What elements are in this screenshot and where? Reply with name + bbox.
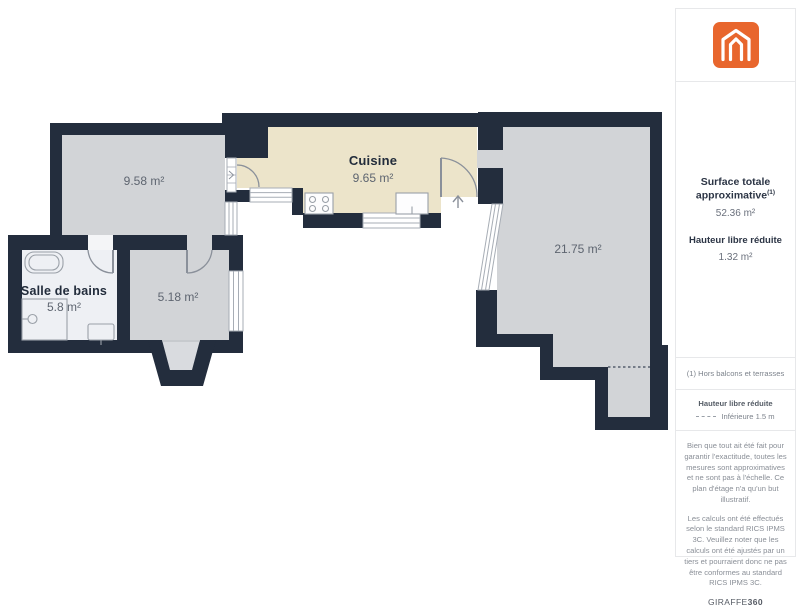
footnote-box: (1) Hors balcons et terrasses — [676, 357, 795, 389]
giraffe360-house-logo-icon — [713, 22, 759, 68]
room-area-9-58: 9.58 m² — [124, 172, 165, 190]
footnote-text: (1) Hors balcons et terrasses — [687, 369, 785, 378]
room-area-salle-de-bains: 5.8 m² — [47, 298, 81, 316]
kitchen-window-bottom — [363, 213, 420, 228]
disclaimer-paragraph-1: Bien que tout ait été fait pour garantir… — [683, 441, 788, 506]
legend-item-text: Inférieure 1.5 m — [721, 412, 774, 421]
legend-title: Hauteur libre réduite — [698, 399, 772, 408]
room-area-5-18: 5.18 m² — [158, 288, 199, 306]
room-area-21-75: 21.75 m² — [554, 240, 601, 258]
surface-total-label: Surface totale approximative(1) — [681, 176, 790, 203]
surface-footnote-marker: (1) — [767, 189, 775, 196]
room-5-18-window — [229, 271, 243, 331]
legend-row: Inférieure 1.5 m — [696, 412, 774, 421]
legend-box: Hauteur libre réduite Inférieure 1.5 m — [676, 389, 795, 430]
room-9-58-window — [225, 202, 237, 235]
bathroom-threshold — [88, 235, 113, 250]
reduced-height-label: Hauteur libre réduite — [689, 235, 782, 246]
floor-plan: Cuisine 9.65 m² 9.58 m² Salle de bains 5… — [0, 0, 672, 565]
stove-icon — [305, 193, 333, 214]
reduced-height-value: 1.32 m² — [719, 252, 753, 263]
dashed-line-icon — [696, 416, 716, 417]
surface-total-value: 52.36 m² — [716, 208, 755, 219]
passage-kitchen-living — [477, 150, 507, 168]
disclaimer-box: Bien que tout ait été fait pour garantir… — [676, 430, 795, 556]
room-5-18-threshold — [187, 235, 212, 250]
kitchen-window-left — [250, 188, 292, 202]
sink-icon — [396, 193, 428, 214]
room-area-cuisine: 9.65 m² — [353, 169, 394, 187]
summary-box: Surface totale approximative(1) 52.36 m²… — [676, 81, 795, 357]
logo-box — [676, 9, 795, 81]
disclaimer-paragraph-2: Les calculs ont été effectués selon le s… — [683, 514, 788, 589]
info-sidebar: Surface totale approximative(1) 52.36 m²… — [675, 8, 796, 557]
room-name-cuisine: Cuisine — [349, 152, 397, 170]
entrance-arrow-icon — [453, 196, 463, 208]
giraffe360-brand: GIRAFFE360 — [683, 597, 788, 607]
